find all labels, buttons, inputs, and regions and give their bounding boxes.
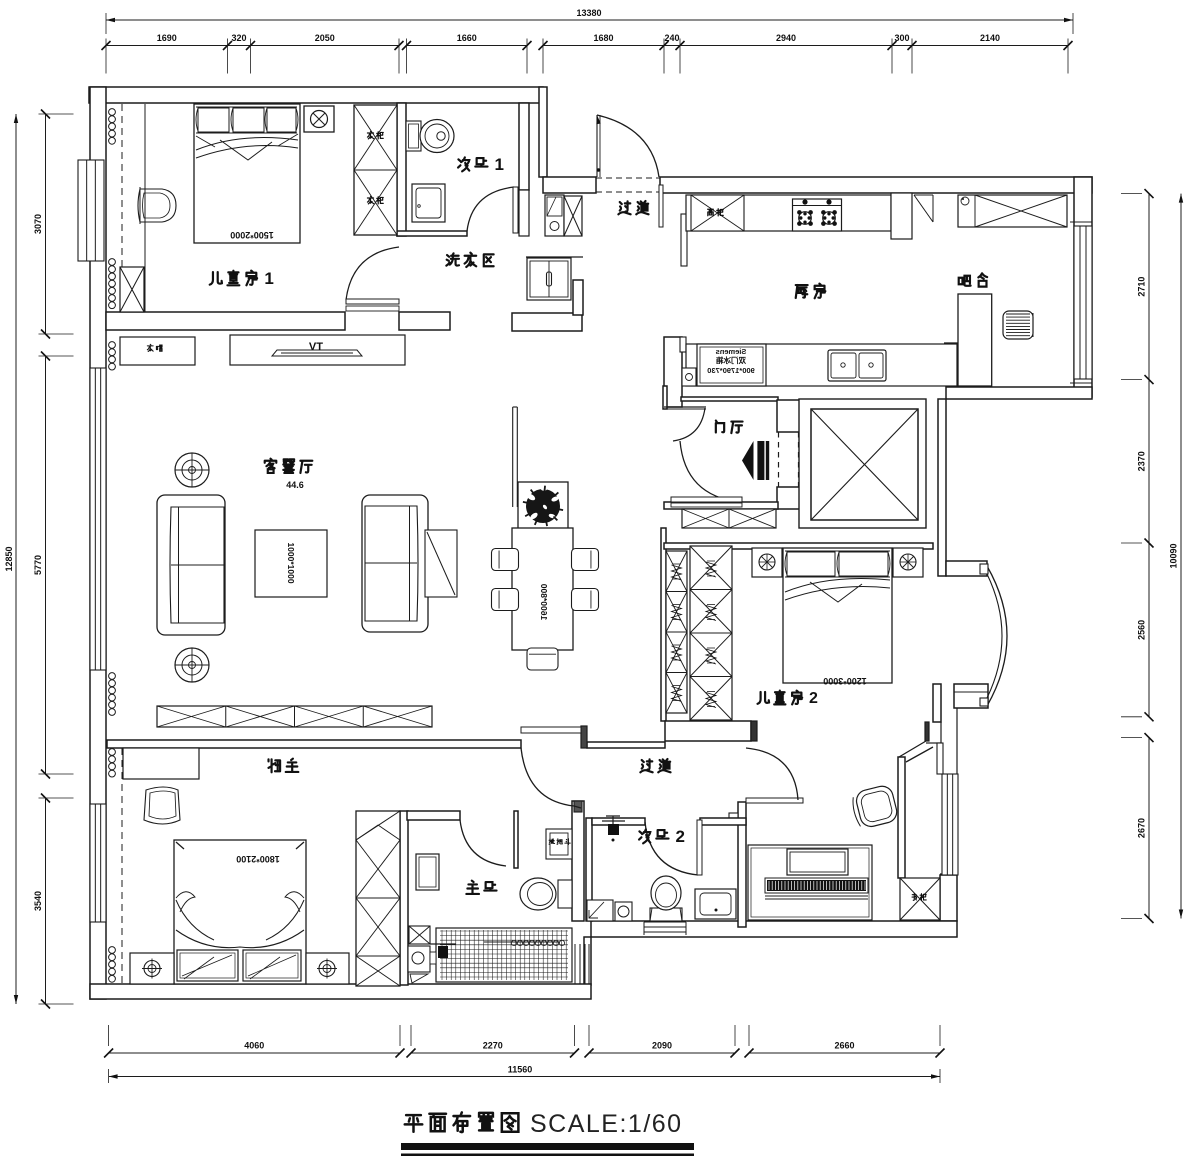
svg-text:1690: 1690 bbox=[157, 33, 177, 43]
svg-text:2270: 2270 bbox=[483, 1041, 503, 1051]
svg-text:900*1790*730: 900*1790*730 bbox=[707, 366, 755, 375]
svg-text:3070: 3070 bbox=[33, 214, 43, 234]
svg-text:2: 2 bbox=[675, 827, 684, 846]
svg-text:SCALE:1/60: SCALE:1/60 bbox=[530, 1110, 683, 1138]
svg-text:2050: 2050 bbox=[315, 33, 335, 43]
svg-text:1600*800: 1600*800 bbox=[539, 584, 549, 621]
svg-text:3540: 3540 bbox=[33, 891, 43, 911]
svg-text:12850: 12850 bbox=[4, 546, 14, 571]
svg-text:TV: TV bbox=[308, 341, 323, 353]
svg-text:双门冰箱: 双门冰箱 bbox=[716, 355, 746, 365]
svg-text:1200*3000: 1200*3000 bbox=[823, 676, 867, 686]
svg-text:300: 300 bbox=[894, 33, 909, 43]
svg-text:13380: 13380 bbox=[576, 8, 601, 18]
svg-text:2940: 2940 bbox=[776, 33, 796, 43]
svg-text:2370: 2370 bbox=[1137, 451, 1147, 471]
svg-text:2140: 2140 bbox=[980, 33, 1000, 43]
svg-text:2560: 2560 bbox=[1137, 620, 1147, 640]
svg-text:2710: 2710 bbox=[1137, 277, 1147, 297]
svg-text:2660: 2660 bbox=[834, 1041, 854, 1051]
svg-text:1: 1 bbox=[264, 269, 273, 288]
svg-text:320: 320 bbox=[231, 33, 246, 43]
svg-text:44.6: 44.6 bbox=[286, 480, 304, 490]
svg-text:1800*2100: 1800*2100 bbox=[236, 854, 280, 864]
svg-text:1000*1000: 1000*1000 bbox=[286, 542, 296, 583]
svg-text:1: 1 bbox=[494, 155, 503, 174]
svg-text:Siemens: Siemens bbox=[716, 347, 747, 356]
svg-text:2670: 2670 bbox=[1137, 818, 1147, 838]
svg-text:11560: 11560 bbox=[508, 1065, 533, 1075]
svg-text:10090: 10090 bbox=[1169, 543, 1179, 568]
svg-text:1660: 1660 bbox=[457, 33, 477, 43]
svg-text:2: 2 bbox=[809, 690, 818, 707]
svg-text:1500*2000: 1500*2000 bbox=[230, 230, 274, 240]
svg-text:240: 240 bbox=[664, 33, 679, 43]
svg-text:5770: 5770 bbox=[33, 555, 43, 575]
svg-text:2090: 2090 bbox=[652, 1041, 672, 1051]
svg-text:4060: 4060 bbox=[244, 1041, 264, 1051]
svg-text:1680: 1680 bbox=[593, 33, 613, 43]
